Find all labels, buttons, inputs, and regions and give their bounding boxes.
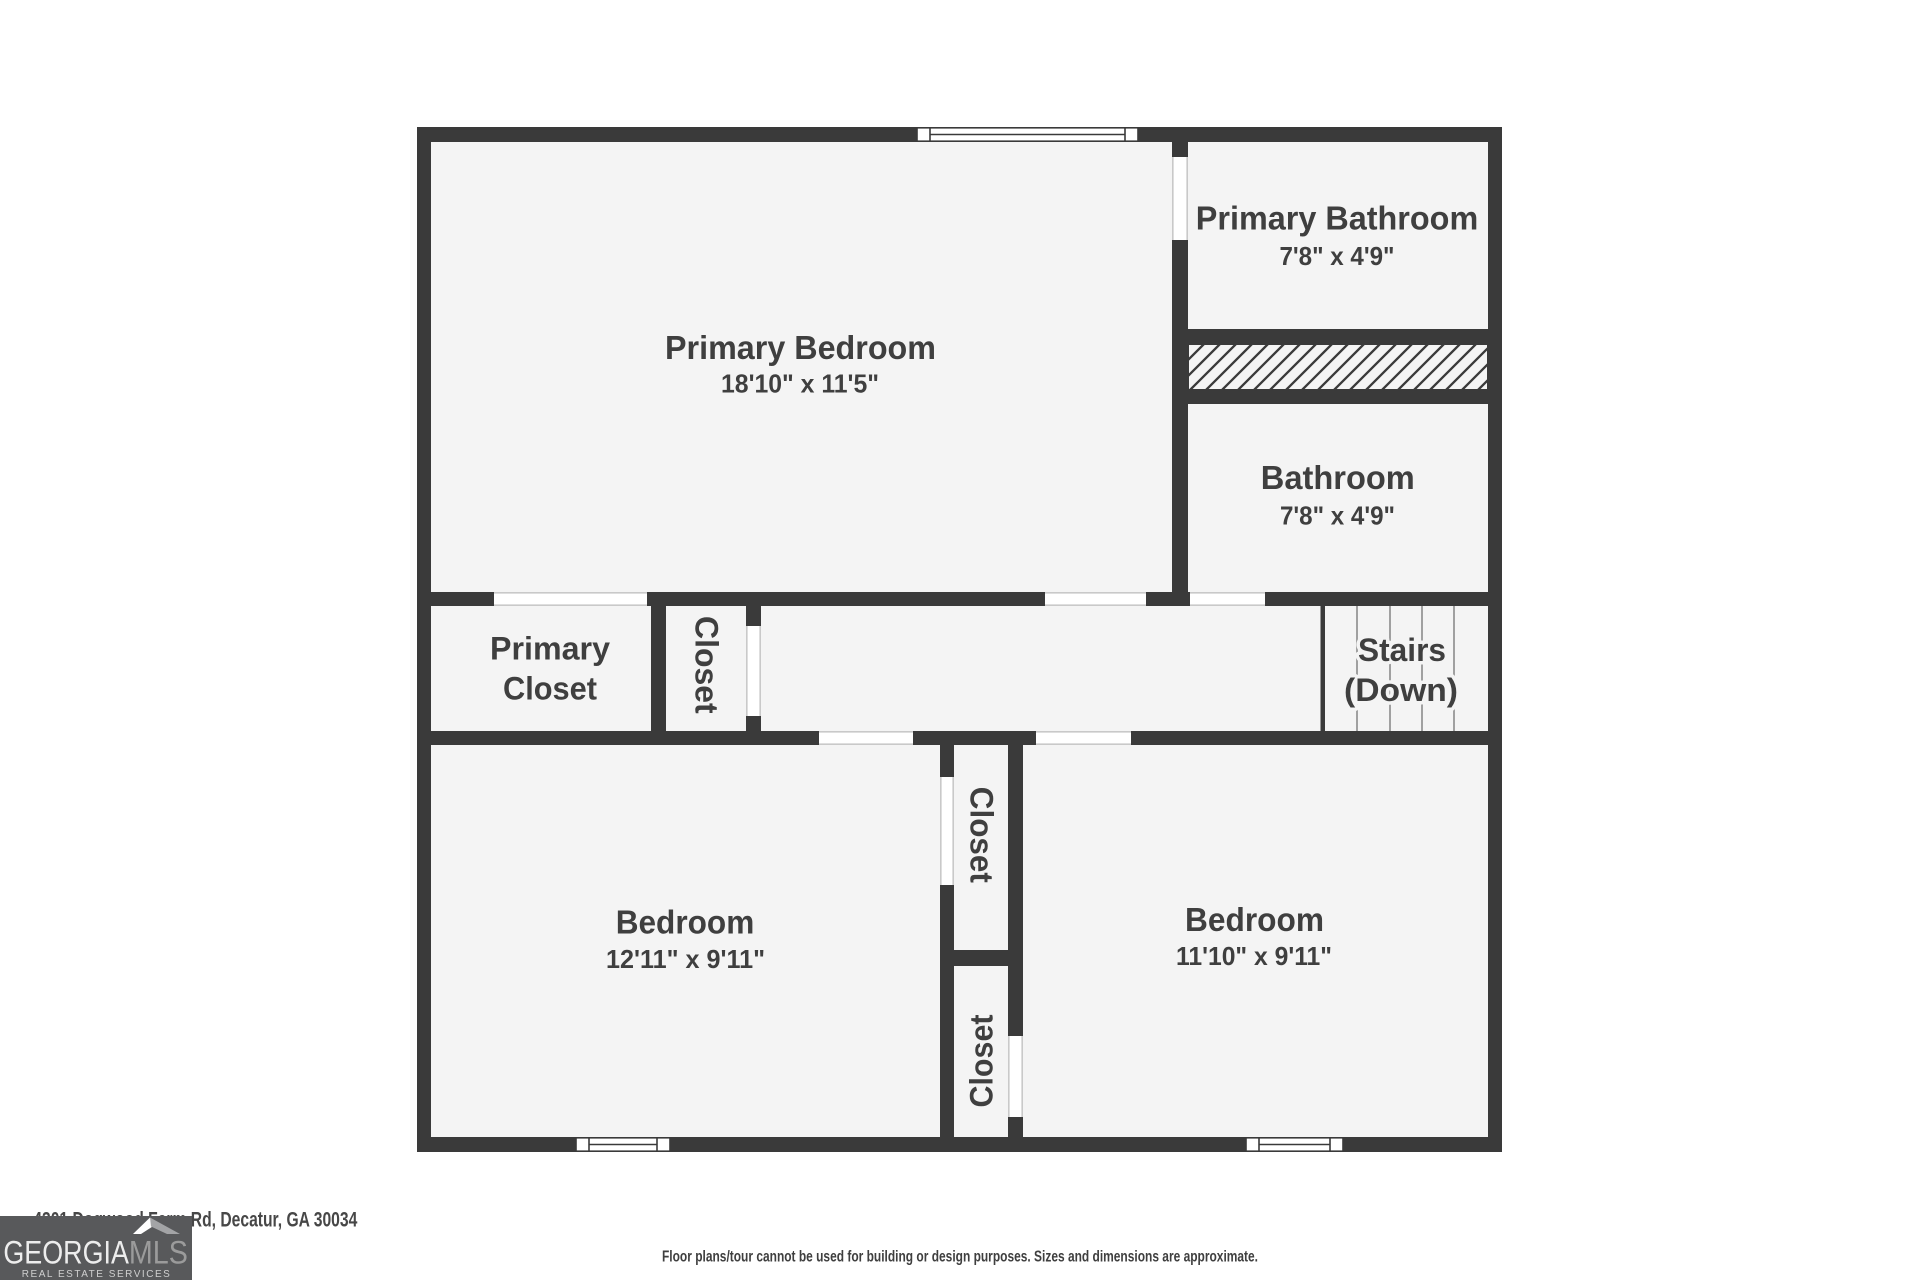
svg-text:12'11" x 9'11": 12'11" x 9'11" — [606, 944, 765, 974]
svg-text:Closet: Closet — [503, 671, 597, 707]
svg-text:11'10" x 9'11": 11'10" x 9'11" — [1176, 941, 1332, 971]
svg-text:Bedroom: Bedroom — [1185, 901, 1324, 938]
svg-text:Primary Bathroom: Primary Bathroom — [1196, 200, 1479, 237]
svg-text:GEORGIA: GEORGIA — [3, 1234, 129, 1270]
svg-text:Stairs: Stairs — [1358, 632, 1446, 668]
svg-text:Bedroom: Bedroom — [616, 904, 755, 941]
svg-text:(Down): (Down) — [1344, 672, 1458, 708]
svg-text:18'10" x 11'5": 18'10" x 11'5" — [721, 369, 879, 399]
svg-text:Primary: Primary — [490, 631, 610, 667]
svg-text:REAL ESTATE SERVICES: REAL ESTATE SERVICES — [22, 1269, 170, 1280]
svg-text:7'8" x 4'9": 7'8" x 4'9" — [1280, 241, 1395, 271]
svg-text:MLS: MLS — [129, 1234, 188, 1270]
svg-text:Closet: Closet — [689, 616, 725, 714]
svg-text:Closet: Closet — [964, 1014, 1000, 1107]
svg-text:Floor plans/tour cannot be use: Floor plans/tour cannot be used for buil… — [662, 1248, 1258, 1265]
svg-text:Bathroom: Bathroom — [1261, 459, 1415, 496]
svg-text:Closet: Closet — [964, 787, 1000, 883]
svg-text:Primary Bedroom: Primary Bedroom — [665, 329, 936, 366]
svg-text:7'8" x 4'9": 7'8" x 4'9" — [1280, 501, 1395, 531]
